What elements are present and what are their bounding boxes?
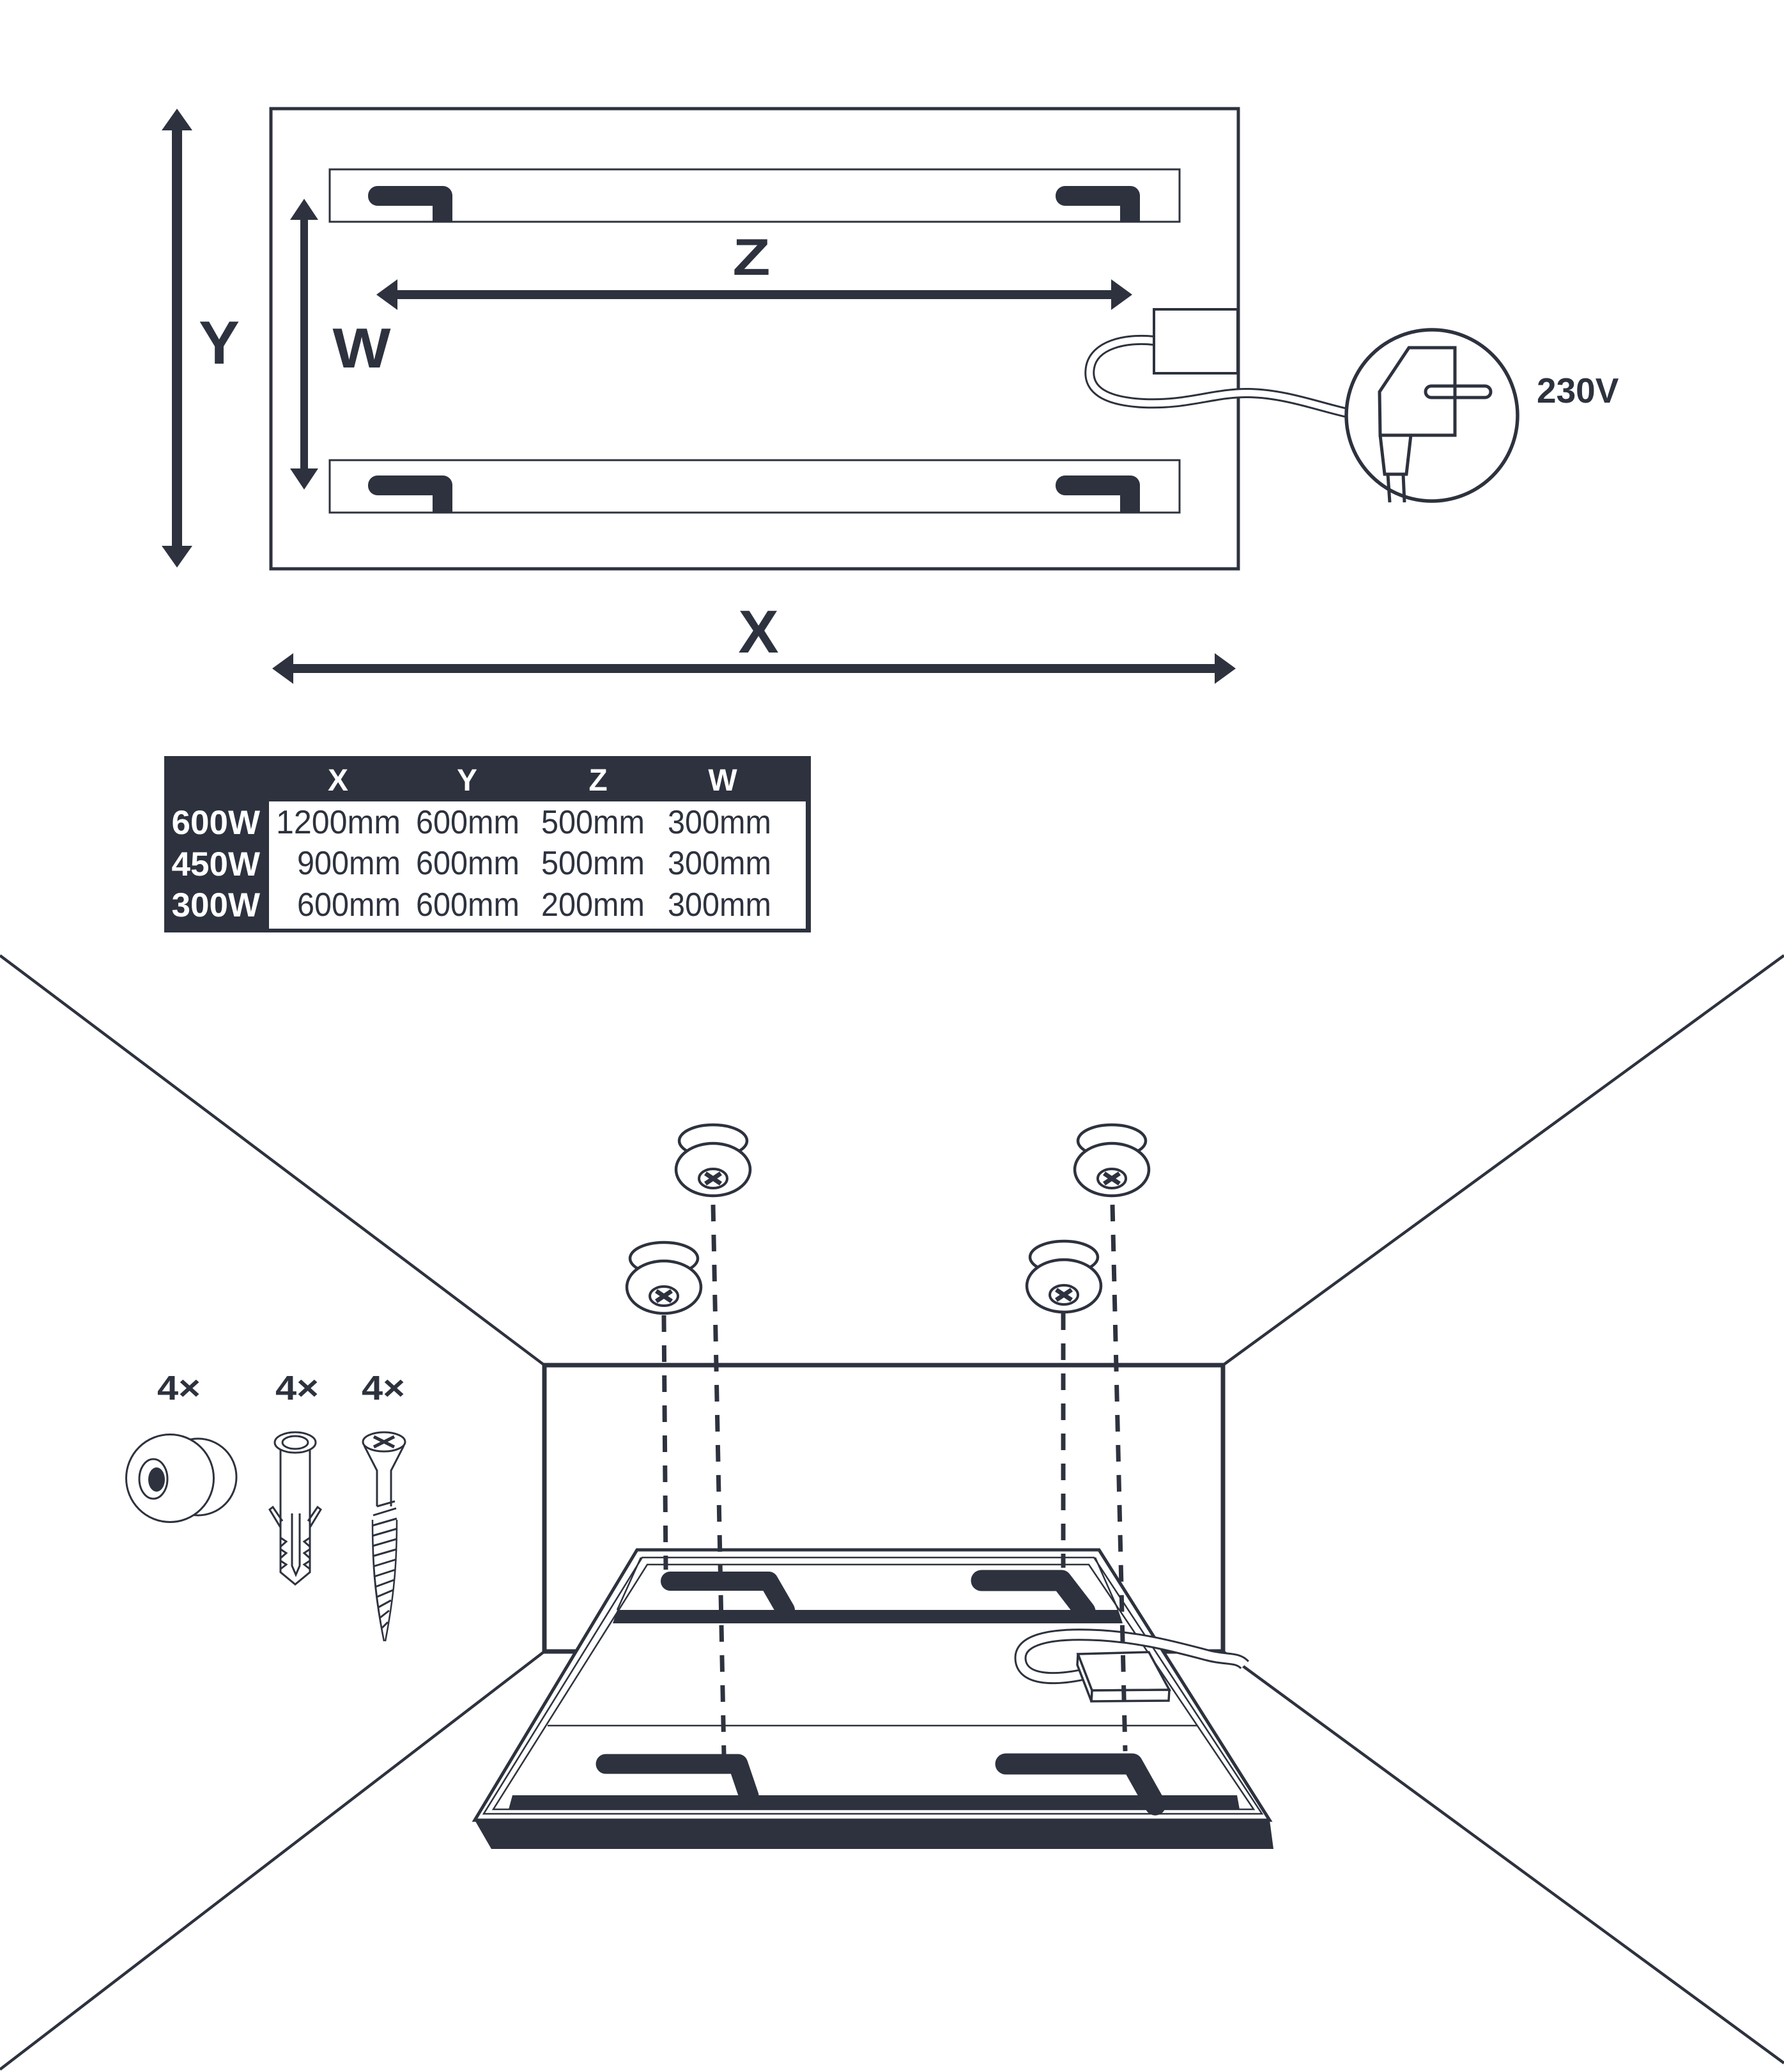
svg-text:300mm: 300mm	[668, 845, 771, 882]
svg-text:Z: Z	[588, 764, 607, 798]
svg-text:500mm: 500mm	[541, 804, 645, 841]
svg-text:300mm: 300mm	[668, 886, 771, 924]
svg-text:300mm: 300mm	[668, 804, 771, 841]
svg-text:X: X	[328, 764, 348, 798]
svg-text:W: W	[333, 316, 391, 380]
svg-text:W: W	[708, 764, 737, 798]
svg-text:600mm: 600mm	[297, 886, 401, 924]
svg-text:Y: Y	[457, 764, 477, 798]
svg-text:900mm: 900mm	[297, 845, 401, 882]
svg-text:600mm: 600mm	[416, 804, 519, 841]
svg-text:Y: Y	[199, 309, 240, 377]
svg-text:4×: 4×	[157, 1369, 201, 1407]
svg-text:4×: 4×	[275, 1369, 319, 1407]
svg-text:X: X	[738, 598, 778, 666]
svg-text:600mm: 600mm	[416, 845, 519, 882]
svg-text:Z: Z	[733, 229, 771, 286]
svg-text:230V: 230V	[1537, 371, 1619, 410]
svg-text:4×: 4×	[362, 1369, 405, 1407]
svg-text:1200mm: 1200mm	[276, 804, 401, 841]
svg-text:600W: 600W	[172, 804, 260, 842]
svg-text:300W: 300W	[172, 886, 260, 924]
svg-text:450W: 450W	[172, 846, 260, 883]
svg-text:200mm: 200mm	[541, 886, 645, 924]
svg-text:500mm: 500mm	[541, 845, 645, 882]
svg-text:600mm: 600mm	[416, 886, 519, 924]
